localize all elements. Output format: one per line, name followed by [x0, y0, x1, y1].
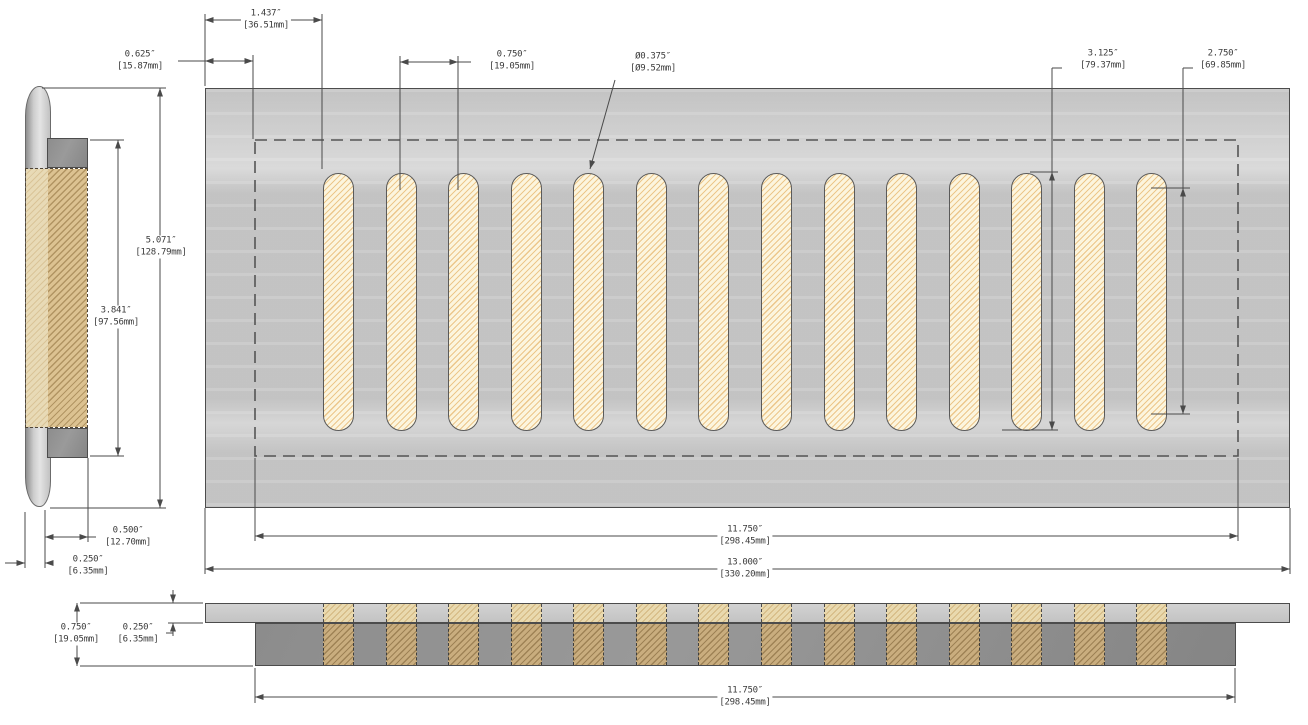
dim-label-plate-height: 5.071″[128.79mm]	[133, 236, 188, 259]
dimension-lines-overlay	[0, 0, 1308, 725]
top-view-dimensions	[178, 14, 1290, 574]
dim-label-slot-pitch: 0.750″[19.05mm]	[487, 50, 537, 73]
technical-drawing-canvas: 1.437″[36.51mm] 0.625″[15.87mm] 0.750″[1…	[0, 0, 1308, 725]
dim-label-edge-to-slot: 1.437″[36.51mm]	[241, 9, 291, 32]
dim-label-duct-width: 11.750″[298.45mm]	[717, 525, 772, 548]
dim-label-plate-width: 13.000″[330.20mm]	[717, 558, 772, 581]
dim-label-slot-straight: 2.750″[69.85mm]	[1198, 49, 1248, 72]
dim-label-plate-thickness: 0.250″[6.35mm]	[116, 623, 161, 646]
dim-label-slot-diameter: Ø0.375″[Ø9.52mm]	[628, 52, 678, 75]
duct-opening-dashed-outline	[255, 140, 1238, 456]
dim-label-duct-width-section: 11.750″[298.45mm]	[717, 686, 772, 709]
side-view-dimensions	[5, 88, 166, 568]
dim-label-slot-length: 3.125″[79.37mm]	[1078, 49, 1128, 72]
section-view-dimensions	[77, 590, 1235, 703]
dim-label-opening-height: 3.841″[97.56mm]	[91, 306, 141, 329]
dim-label-body-height: 0.750″[19.05mm]	[51, 623, 101, 646]
dim-label-frame-depth: 0.500″[12.70mm]	[103, 526, 153, 549]
dim-label-flange-thickness: 0.250″[6.35mm]	[66, 555, 111, 578]
dim-label-duct-inset: 0.625″[15.87mm]	[115, 50, 165, 73]
